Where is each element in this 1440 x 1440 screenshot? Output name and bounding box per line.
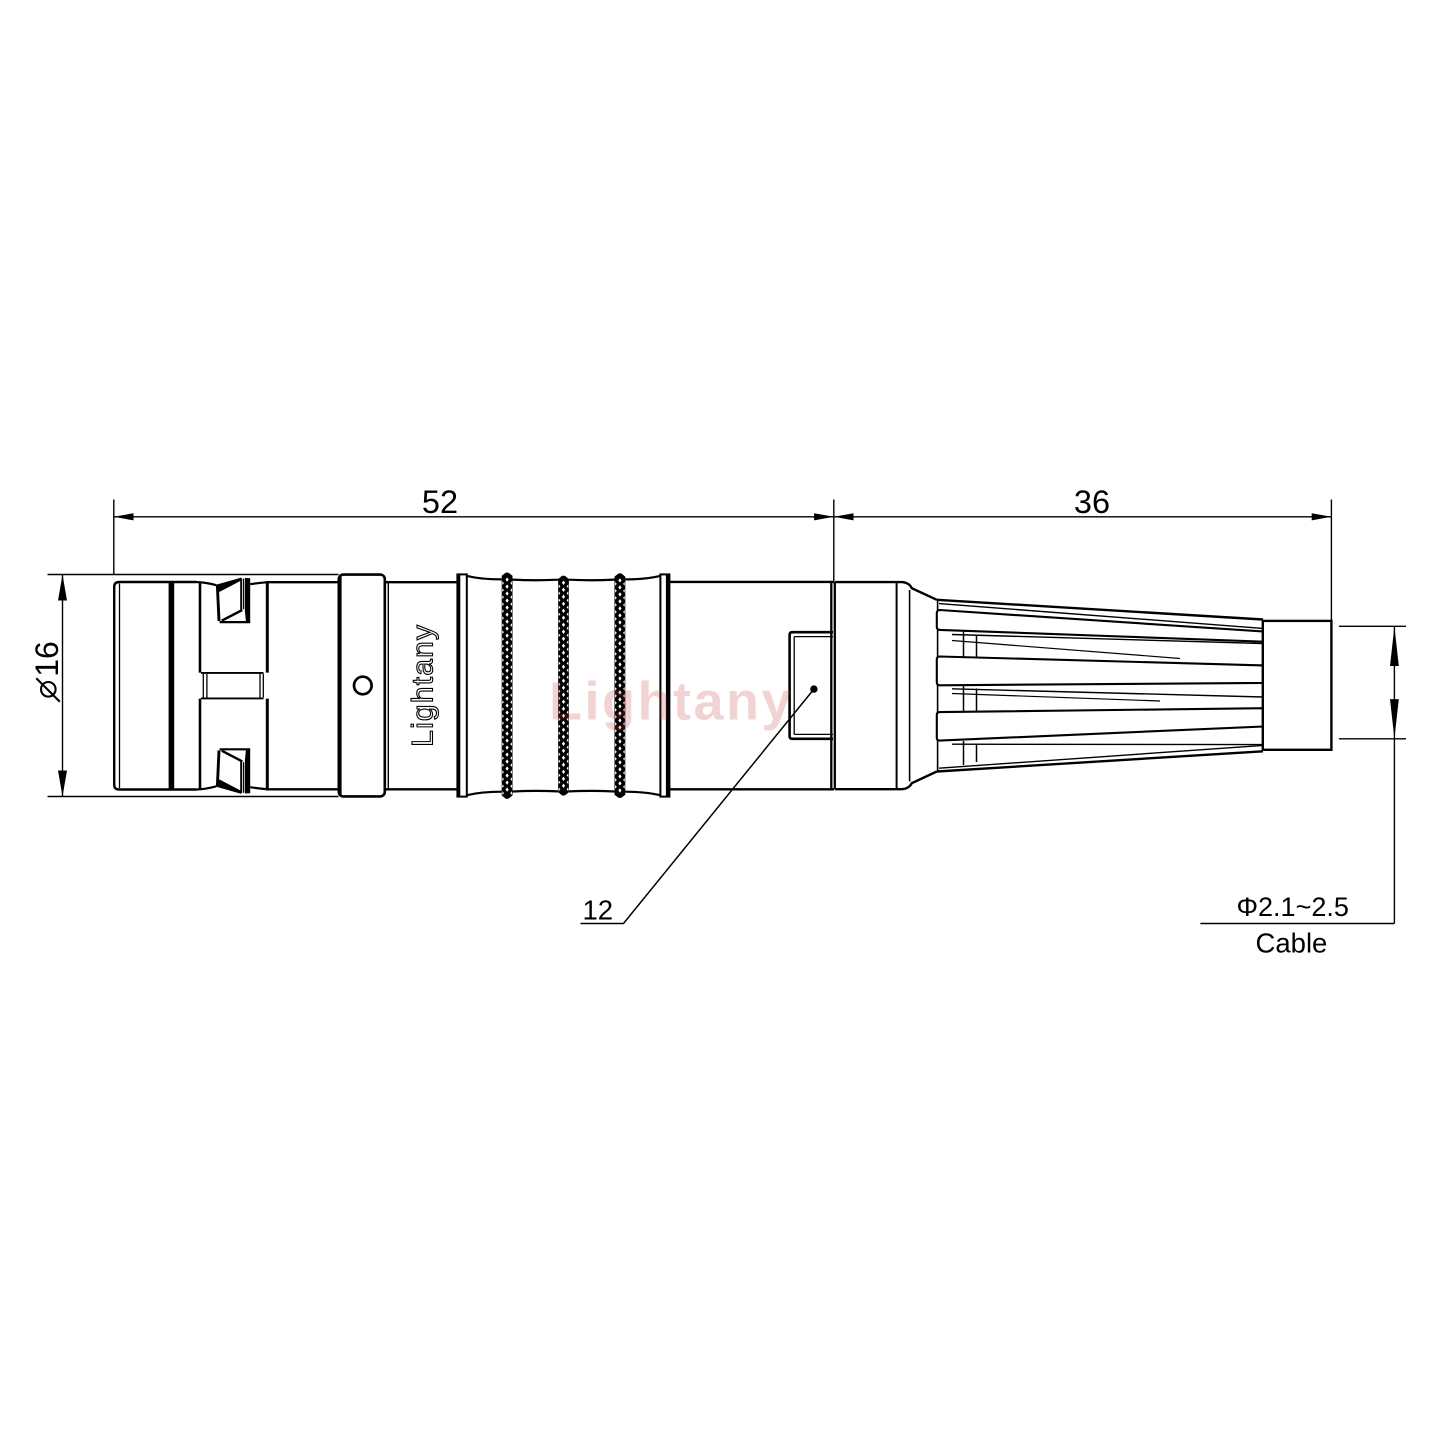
svg-text:Cable: Cable xyxy=(1256,928,1328,959)
svg-text:52: 52 xyxy=(422,484,458,520)
svg-text:36: 36 xyxy=(1074,484,1110,520)
svg-text:Lightany: Lightany xyxy=(407,624,440,747)
svg-text:Lightany: Lightany xyxy=(549,672,794,732)
svg-text:16: 16 xyxy=(29,641,65,677)
svg-text:12: 12 xyxy=(583,895,614,926)
svg-text:Φ2.1~2.5: Φ2.1~2.5 xyxy=(1237,892,1349,922)
